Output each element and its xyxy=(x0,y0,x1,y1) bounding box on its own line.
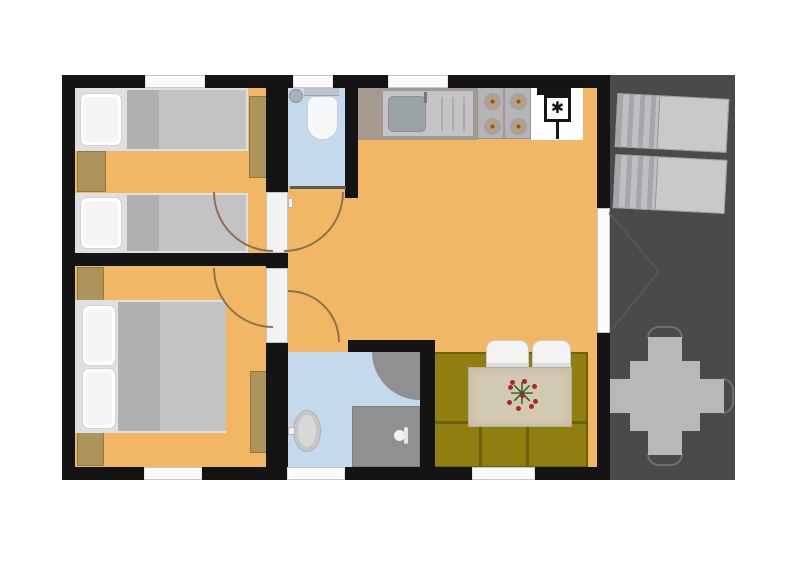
window-kitchen xyxy=(388,75,448,88)
sun-lounger-2 xyxy=(613,154,728,214)
washbasin-tap xyxy=(288,427,295,435)
outdoor-table-arm-n xyxy=(648,337,682,363)
toilet-tank xyxy=(304,88,339,96)
sink-basin xyxy=(388,96,426,132)
sofa-cushion-divider-1 xyxy=(479,424,482,466)
single-bed-2-fold xyxy=(127,195,159,251)
sink-drainboard xyxy=(432,97,470,131)
wc-corner-sink xyxy=(289,89,303,103)
window-bedroom1 xyxy=(145,75,205,88)
sun-lounger-backrest xyxy=(614,155,659,209)
shower-tray xyxy=(352,406,420,467)
stove-divider xyxy=(503,86,505,139)
burner-2 xyxy=(510,93,527,110)
fridge-freezer-box: ✱ xyxy=(544,95,571,122)
double-bed-fold xyxy=(118,302,160,431)
single-bed-1-pillow xyxy=(80,93,122,146)
shower-arm xyxy=(404,427,408,444)
wc-threshold xyxy=(290,186,346,189)
toilet-bowl xyxy=(307,96,338,140)
wall-wc-right xyxy=(345,75,358,198)
double-bed-pillow-bottom xyxy=(82,368,116,429)
wall-outer-left xyxy=(62,75,75,480)
window-wc xyxy=(293,75,333,88)
flower-centerpiece: ✳ xyxy=(506,379,538,411)
burner-1 xyxy=(484,93,501,110)
sun-lounger-1 xyxy=(615,93,730,153)
burner-3 xyxy=(484,118,501,135)
dining-chair-1 xyxy=(486,340,529,369)
sun-lounger-backrest xyxy=(616,94,661,148)
french-door-to-deck xyxy=(597,208,610,333)
sink-faucet xyxy=(424,92,427,103)
nightstand-bedroom1 xyxy=(77,151,106,192)
floor-plan: ✱ ✳ xyxy=(0,0,800,566)
single-bed-2-pillow xyxy=(80,197,122,249)
window-bathroom xyxy=(287,467,345,480)
outdoor-table-arm-e xyxy=(698,379,724,413)
wall-bathroom-right xyxy=(420,340,435,467)
nightstand-bedroom2-top xyxy=(77,267,104,301)
burner-4 xyxy=(510,118,527,135)
dining-chair-2 xyxy=(532,340,571,369)
single-bed-1-fold xyxy=(127,90,159,149)
window-bedroom2 xyxy=(144,467,202,480)
double-bed-pillow-top xyxy=(82,305,116,366)
window-living xyxy=(472,467,535,480)
washbasin xyxy=(293,410,321,452)
flower-red-petals xyxy=(520,393,525,398)
nightstand-bedroom2-bottom xyxy=(77,432,104,466)
fridge-stem xyxy=(556,119,559,139)
sofa-cushion-divider-2 xyxy=(526,424,529,466)
outdoor-table-center xyxy=(630,361,700,431)
outdoor-table-arm-s xyxy=(648,429,682,455)
freezer-star-symbol: ✱ xyxy=(551,100,564,117)
wall-between-bedrooms xyxy=(62,253,288,266)
